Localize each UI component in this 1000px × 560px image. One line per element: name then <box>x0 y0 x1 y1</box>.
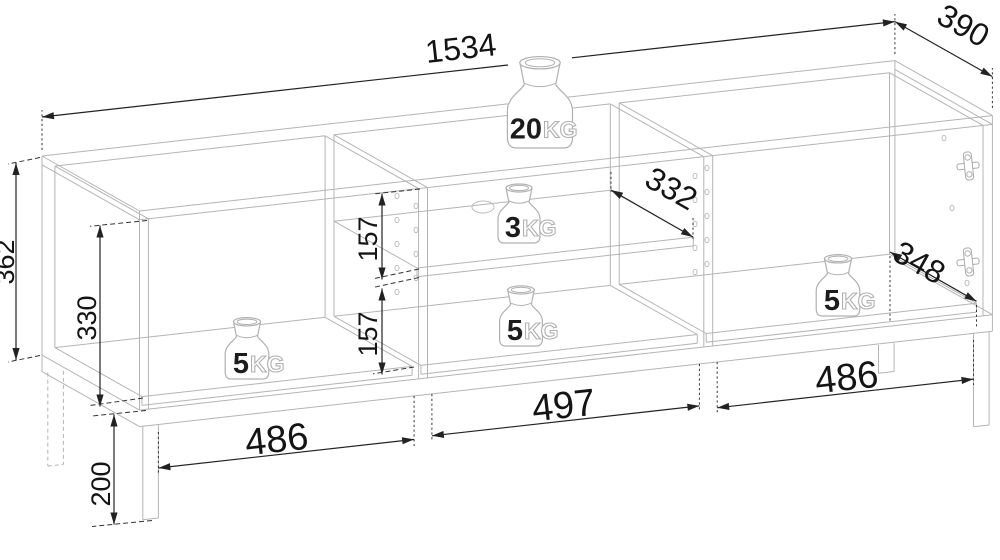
dim-overall-width: 1534 <box>423 26 498 70</box>
weight-capacity-number: 3 <box>505 212 521 244</box>
dimension-labels: 1534 390 362 330 157 157 332 348 200 486… <box>0 0 995 507</box>
dim-left-opening-height: 330 <box>72 295 102 340</box>
weight-capacity-unit: KG <box>250 351 285 377</box>
dim-bottom-left-width: 486 <box>243 416 311 465</box>
weight-icon-left-compartment: 5KG <box>225 318 284 380</box>
dim-leg-height: 200 <box>86 461 116 506</box>
weight-icon-middle-bottom: 5KG <box>500 286 559 347</box>
dim-bottom-middle-width: 497 <box>530 382 598 431</box>
weight-icon-top: 20KG <box>507 57 577 148</box>
load-capacity-icons: 20KG3KG5KG5KG5KG <box>225 57 875 380</box>
dim-floor-depth: 348 <box>887 234 951 292</box>
weight-capacity-number: 5 <box>824 285 840 317</box>
weight-icon-middle-shelf: 3KG <box>498 184 557 244</box>
weight-capacity-number: 20 <box>510 114 542 146</box>
dim-shelf-gap-upper: 157 <box>353 216 383 261</box>
weight-capacity-number: 5 <box>233 348 249 380</box>
dim-shelf-depth: 332 <box>639 160 703 218</box>
dim-overall-depth: 390 <box>931 0 995 54</box>
dim-overall-height: 362 <box>0 239 20 284</box>
weight-icon-right-compartment: 5KG <box>816 255 875 317</box>
weight-capacity-unit: KG <box>543 117 578 143</box>
dim-shelf-gap-lower: 157 <box>353 311 383 356</box>
technical-drawing-page: 20KG3KG5KG5KG5KG 1534 390 362 330 157 15… <box>0 0 1000 560</box>
weight-capacity-number: 5 <box>507 315 523 347</box>
dim-bottom-right-width: 486 <box>813 354 881 403</box>
weight-capacity-unit: KG <box>524 318 559 344</box>
drawing-canvas: 20KG3KG5KG5KG5KG 1534 390 362 330 157 15… <box>0 0 1000 560</box>
weight-capacity-unit: KG <box>522 215 557 241</box>
weight-capacity-unit: KG <box>841 288 876 314</box>
